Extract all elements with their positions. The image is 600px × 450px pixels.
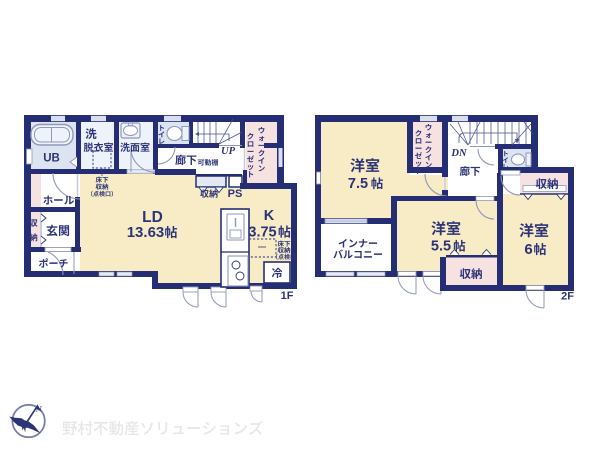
svg-text:2F: 2F	[561, 291, 574, 303]
svg-text:PS: PS	[228, 188, 243, 200]
svg-text:N: N	[35, 404, 43, 414]
svg-text:UB: UB	[43, 153, 60, 165]
svg-text:1F: 1F	[281, 290, 294, 302]
svg-text:DN: DN	[450, 148, 467, 159]
svg-text:UP: UP	[221, 146, 236, 157]
svg-text:6: 6	[524, 241, 532, 258]
svg-text:13.63: 13.63	[127, 224, 165, 241]
svg-text:3.75: 3.75	[248, 225, 276, 241]
svg-text:K: K	[264, 208, 275, 224]
svg-text:5.5: 5.5	[431, 239, 451, 255]
svg-text:7.5: 7.5	[348, 176, 368, 192]
